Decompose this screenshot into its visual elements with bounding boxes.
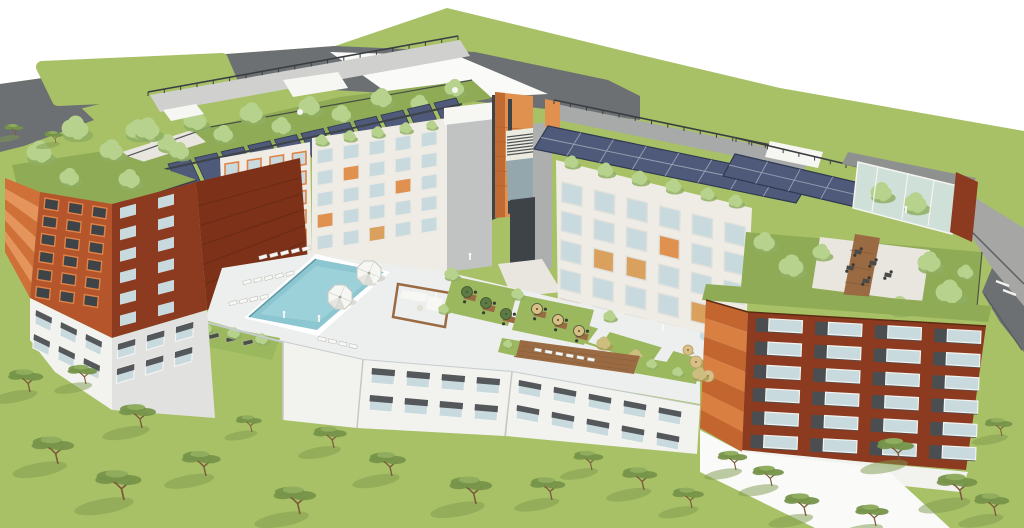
facade-midright-windows <box>724 251 745 276</box>
facade-midright-roof-plants <box>705 193 712 200</box>
facade-center-windows <box>317 147 333 164</box>
facade-midright-windows <box>626 227 647 252</box>
facade-center-windows <box>395 199 411 216</box>
left-wing-front-windows <box>85 277 100 290</box>
picnic-tables-green <box>482 311 485 314</box>
facade-center-windows <box>369 225 385 242</box>
planter-left-trees <box>232 332 238 338</box>
right-wing-windows <box>887 349 921 363</box>
left-wing-front-windows <box>42 216 57 229</box>
back-terrace-trees <box>192 118 204 130</box>
facade-center-windows <box>369 204 385 221</box>
right-wing-windows <box>828 322 862 336</box>
terrace-tables <box>868 276 871 279</box>
picnic-tables-green <box>474 291 477 294</box>
facade-midright-windows <box>692 243 713 268</box>
elevator-tower-1 <box>447 112 492 272</box>
facade-midright-roof-plants <box>733 200 740 207</box>
left-wing-roof-trees <box>71 126 85 140</box>
rendering-canvas <box>0 0 1024 528</box>
right-wing-windows <box>886 372 920 386</box>
left-wing-front-windows <box>36 287 51 300</box>
facade-center-roof-plants <box>320 139 326 145</box>
right-wing-windows <box>944 399 978 413</box>
ground-trees <box>946 474 966 481</box>
facade-midright-windows <box>594 190 615 215</box>
facade-center-windows <box>395 156 411 173</box>
facade-center-windows <box>369 161 385 178</box>
roofdeck-shrubs <box>676 371 681 376</box>
back-terrace-umbrella-dots <box>452 87 458 93</box>
picnic-tables-green <box>505 313 507 315</box>
terrace-tables <box>875 258 878 261</box>
ground-trees <box>127 404 145 410</box>
left-wing-front-windows <box>89 241 104 254</box>
terrace-tables <box>853 254 856 257</box>
lounge-table <box>417 305 423 311</box>
right-wing-windows <box>823 439 857 453</box>
ground-trees <box>759 466 774 471</box>
roofdeck-shrubs <box>650 363 655 368</box>
right-wing-windows <box>765 412 799 426</box>
terrace-tables <box>861 283 864 286</box>
back-terrace-trees <box>220 133 230 143</box>
facade-center-windows <box>421 131 437 148</box>
facade-midright-windows <box>660 206 681 231</box>
ground-trees <box>283 486 304 493</box>
facade-center-windows <box>421 217 437 234</box>
courtyard-trees <box>442 308 447 313</box>
left-wing-front-windows <box>66 220 81 233</box>
facade-center-windows <box>343 229 359 246</box>
facade-center-windows <box>317 212 333 229</box>
terrace-right-trees <box>819 251 828 260</box>
ground-trees <box>885 438 903 444</box>
facade-center-windows <box>343 186 359 203</box>
ground-trees <box>630 467 647 473</box>
facade-midright-windows <box>594 219 615 244</box>
facade-center-windows <box>421 195 437 212</box>
ground-trees <box>190 451 209 457</box>
courtyard-strip-tree <box>697 373 704 380</box>
right-wing-windows <box>826 369 860 383</box>
ground-trees <box>982 493 999 499</box>
facade-midright-windows <box>725 222 746 247</box>
facade-center-windows <box>317 190 333 207</box>
terrace-tables <box>845 270 848 273</box>
facade-midright-windows <box>560 269 581 294</box>
stair-tower-shade <box>495 92 505 218</box>
facade-midright-roof-plants <box>569 161 576 168</box>
left-wing-roof-trees <box>108 148 120 160</box>
ground-trees <box>49 131 58 134</box>
left-wing-front-windows <box>61 273 76 286</box>
left-wing-front-windows <box>65 237 80 250</box>
elevator-tower-1 <box>447 112 492 272</box>
picnic-tables-tan <box>586 330 589 333</box>
ground-trees <box>863 504 879 509</box>
right-wing-windows <box>827 346 861 360</box>
left-wing-roof-trees <box>126 177 137 188</box>
back-terrace-trees <box>248 111 260 123</box>
left-wing-front-windows <box>87 259 102 272</box>
facade-midright-roof-plants <box>671 185 679 193</box>
facade-center-windows <box>343 208 359 225</box>
tiny-people <box>318 315 321 318</box>
facade-center-windows <box>395 221 411 238</box>
facade-midright-windows <box>627 198 648 223</box>
right-wing-windows <box>945 376 979 390</box>
back-terrace-umbrella-dots <box>297 109 303 115</box>
back-terrace-trees <box>306 104 317 115</box>
terrace-tables <box>868 265 871 268</box>
ground-trees <box>459 476 480 483</box>
picnic-tables-tan <box>557 319 559 321</box>
ground-trees <box>105 470 128 478</box>
architectural-rendering <box>0 0 1024 528</box>
left-wing-roof-trees <box>66 176 76 186</box>
left-wing-front-windows <box>37 269 52 282</box>
left-wing-front-windows <box>92 206 107 219</box>
left-wing-front-windows <box>44 198 59 211</box>
terrace-tables <box>852 263 855 266</box>
ground-trees <box>16 369 33 375</box>
right-wing-windows <box>888 326 922 340</box>
ground-trees <box>538 477 555 483</box>
entry-recess <box>510 197 535 266</box>
pavilion-interior-trees <box>878 190 889 201</box>
facade-center-windows <box>421 174 437 191</box>
facade-center-windows <box>343 165 359 182</box>
back-terrace-trees <box>378 96 389 107</box>
facade-midright-windows <box>593 277 614 302</box>
terrace-tables <box>883 277 886 280</box>
picnic-tables-green <box>463 300 466 303</box>
entry-recess <box>510 197 535 266</box>
terrace-right-trees <box>945 290 959 304</box>
courtyard-trees <box>608 315 614 321</box>
facade-midright-windows <box>562 182 583 207</box>
facade-midright-windows <box>593 248 614 273</box>
orange-roof-corner <box>545 99 560 130</box>
picnic-tables-tan <box>544 308 547 311</box>
picnic-tables-green <box>502 322 505 325</box>
right-wing-windows <box>825 392 859 406</box>
left-wing-front-windows <box>60 291 75 304</box>
courtyard-trees <box>449 273 456 280</box>
right-wing-windows <box>942 446 976 460</box>
back-terrace-trees <box>278 125 288 135</box>
planter-left-trees <box>260 338 266 344</box>
picnic-tables-tan <box>533 317 536 320</box>
back-terrace-trees <box>338 113 348 123</box>
facade-center-windows <box>421 152 437 169</box>
ground-trees <box>679 488 694 493</box>
facade-center-roof-plants <box>376 131 382 137</box>
facade-center-windows <box>317 169 333 186</box>
ground-trees <box>74 365 88 370</box>
facade-center-windows <box>317 233 333 250</box>
courtyard-trees <box>516 293 522 299</box>
facade-midright-windows <box>659 264 680 289</box>
orange-roof-corner <box>545 99 560 130</box>
terrace-right-trees <box>761 240 772 251</box>
picnic-tables-green <box>493 302 496 305</box>
facade-midright-windows <box>692 214 713 239</box>
tiny-people <box>435 293 438 296</box>
lawn-east-dry-trees <box>601 342 608 349</box>
facade-center-windows <box>343 143 359 160</box>
picnic-tables-tan <box>578 330 580 332</box>
tiny-people <box>905 206 908 209</box>
facade-midright-windows <box>561 240 582 265</box>
courtyard-tan-parasols <box>695 361 697 363</box>
ground-trees <box>377 452 395 458</box>
right-wing-windows <box>769 319 803 333</box>
right-wing-windows <box>885 396 919 410</box>
left-wing-front-windows <box>68 202 83 215</box>
ground-trees <box>321 426 337 431</box>
left-wing-roof-trees <box>176 150 186 160</box>
facade-midright-windows <box>659 235 680 260</box>
picnic-tables-green <box>513 313 516 316</box>
facade-center-windows <box>395 178 411 195</box>
pool-umbrellas <box>339 296 342 299</box>
picnic-tables-green <box>485 302 487 304</box>
facade-center-windows <box>395 135 411 152</box>
facade-center-roof-plants <box>404 127 410 133</box>
pavilion-interior-trees <box>912 201 924 213</box>
terrace-tables <box>860 247 863 250</box>
right-wing-windows <box>947 329 981 343</box>
tiny-people <box>375 276 378 279</box>
tiny-people <box>283 311 286 314</box>
terrace-tables <box>890 270 893 273</box>
facade-midright-windows <box>625 285 646 310</box>
ground-trees <box>9 124 18 127</box>
ground-trees <box>991 418 1005 423</box>
picnic-tables-tan <box>565 319 568 322</box>
facade-center-windows <box>369 182 385 199</box>
left-wing-roof-trees <box>35 150 48 163</box>
left-wing-front-windows <box>63 255 78 268</box>
picnic-tables-green <box>466 291 468 293</box>
pool-umbrellas <box>368 272 371 275</box>
picnic-tables-tan <box>554 328 557 331</box>
facade-center-windows <box>369 139 385 156</box>
courtyard-tan-parasols <box>687 349 689 351</box>
right-wing-windows <box>766 389 800 403</box>
ground-trees <box>724 451 738 456</box>
left-wing-front-windows <box>41 233 56 246</box>
left-wing-front-windows <box>39 251 54 264</box>
left-wing-roof-trees <box>143 127 156 140</box>
facade-midright-windows <box>561 211 582 236</box>
right-wing-windows <box>943 423 977 437</box>
tiny-people <box>469 253 472 256</box>
right-wing-windows <box>768 342 802 356</box>
facade-midright-roof-plants <box>637 177 645 185</box>
tiny-people <box>662 324 665 327</box>
terrace-right-trees <box>926 260 938 272</box>
right-wing-windows <box>767 365 801 379</box>
facade-midright-windows <box>626 256 647 281</box>
picnic-tables-tan <box>575 339 578 342</box>
facade-midright-windows <box>658 293 679 318</box>
ground-trees <box>580 451 594 456</box>
right-wing-windows <box>946 353 980 367</box>
terrace-right-trees <box>787 264 800 277</box>
roofdeck-shrubs <box>506 343 511 348</box>
right-wing-windows <box>824 416 858 430</box>
ground-trees <box>41 436 62 443</box>
facade-midright-roof-plants <box>603 169 611 177</box>
facade-center-roof-plants <box>348 135 354 141</box>
picnic-tables-tan <box>536 308 538 310</box>
stair-tower-shade <box>495 92 505 218</box>
facade-center-roof-plants <box>430 124 435 129</box>
ground-trees <box>242 415 255 419</box>
left-wing-front-windows <box>84 295 99 308</box>
ground-trees <box>792 493 809 499</box>
lounge-table <box>417 305 423 311</box>
right-wing-windows <box>884 419 918 433</box>
left-wing-front-windows <box>90 224 105 237</box>
terrace-right-trees <box>963 271 971 279</box>
right-wing-windows <box>764 435 798 449</box>
